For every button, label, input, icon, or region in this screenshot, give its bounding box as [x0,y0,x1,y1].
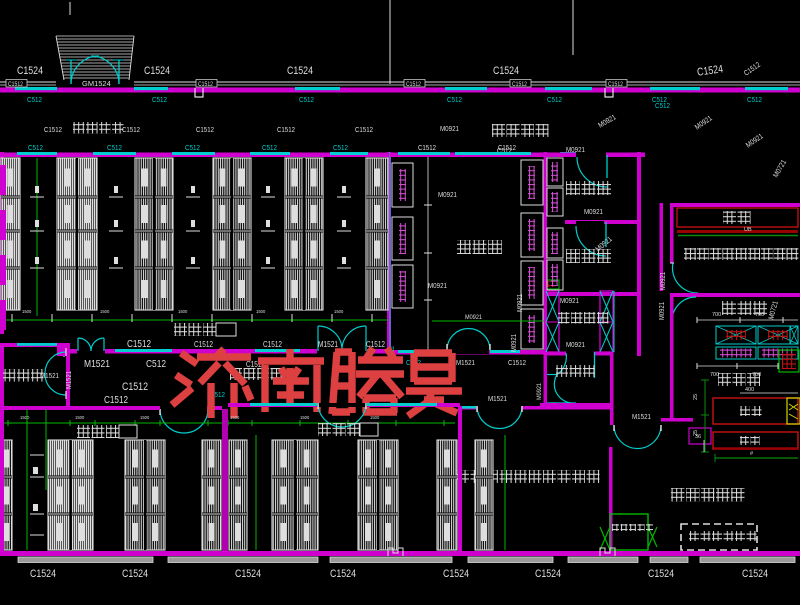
svg-text:1500: 1500 [22,309,32,314]
svg-text:C1524: C1524 [30,568,56,580]
svg-text:C1512: C1512 [44,125,62,134]
svg-text:400: 400 [745,387,754,393]
svg-text:M1521: M1521 [456,358,475,367]
svg-text:C512: C512 [299,95,314,104]
svg-text:C1512: C1512 [418,143,436,152]
svg-text:C512: C512 [447,95,462,104]
svg-text:M0921: M0921 [584,207,603,216]
svg-text:C1512: C1512 [608,81,623,88]
svg-text:C512: C512 [107,143,122,152]
svg-text:1500: 1500 [230,415,240,420]
svg-text:1500: 1500 [20,415,30,420]
svg-text:C1524: C1524 [287,65,313,77]
svg-text:M0921: M0921 [511,334,518,352]
svg-text:M0921: M0921 [659,302,666,320]
svg-text:C1512: C1512 [512,81,527,88]
svg-text:C1524: C1524 [17,65,43,77]
svg-text:C1524: C1524 [144,65,170,77]
svg-text:C1524: C1524 [443,568,469,580]
svg-text:C1512: C1512 [196,125,214,134]
svg-text:C1512: C1512 [498,143,516,152]
svg-text:GM1524: GM1524 [82,79,111,88]
svg-text:1500: 1500 [256,309,266,314]
svg-text:1500: 1500 [334,309,344,314]
svg-text:UB: UB [744,227,752,233]
svg-text:C512: C512 [333,143,348,152]
svg-text:C1512: C1512 [194,340,213,349]
svg-text:1500: 1500 [100,309,110,314]
svg-text:M0921: M0921 [465,314,482,321]
svg-text:C1524: C1524 [535,568,561,580]
svg-text:M0921: M0921 [660,272,667,290]
svg-text:M1521: M1521 [40,371,59,380]
svg-text:C1524: C1524 [742,568,768,580]
svg-text:C1524: C1524 [330,568,356,580]
svg-text:C1512: C1512 [8,81,23,88]
svg-text:C512: C512 [547,95,562,104]
svg-text:700: 700 [712,312,721,318]
svg-text:C1512: C1512 [122,381,148,393]
svg-text:M0921: M0921 [517,294,524,312]
svg-text:1500: 1500 [140,415,150,420]
svg-text:M0921: M0921 [438,190,457,199]
svg-text:25: 25 [693,430,699,436]
svg-text:C1512: C1512 [508,358,526,367]
svg-text:C512: C512 [28,143,43,152]
svg-text:C512: C512 [185,143,200,152]
svg-text:M0921: M0921 [536,383,543,400]
svg-text:M1521: M1521 [488,394,507,403]
svg-text:C1512: C1512 [263,340,282,349]
svg-text:C512: C512 [146,359,166,370]
svg-text:C1512: C1512 [277,125,295,134]
svg-text:M0921: M0921 [440,124,459,133]
svg-text:1500: 1500 [178,309,188,314]
svg-text:M1521: M1521 [632,412,651,421]
svg-text:C512: C512 [262,143,277,152]
svg-text:C512: C512 [747,95,762,104]
svg-text:M1521: M1521 [84,359,110,370]
svg-text:C1512: C1512 [355,125,373,134]
svg-text:C1512: C1512 [406,81,421,88]
svg-text:25: 25 [693,394,699,400]
svg-text:C512: C512 [152,95,167,104]
svg-text:C1512: C1512 [127,339,151,350]
svg-text:700: 700 [755,312,764,318]
svg-text:C512: C512 [655,101,670,110]
svg-text:700: 700 [710,372,719,378]
svg-text:C1512: C1512 [104,395,128,406]
svg-text:C1512: C1512 [122,125,140,134]
svg-text:C512: C512 [27,95,42,104]
svg-text:C1524: C1524 [648,568,674,580]
svg-text:1500: 1500 [75,415,85,420]
svg-text:M0921: M0921 [566,340,585,349]
svg-text:C1524: C1524 [493,65,519,77]
svg-text:M1521: M1521 [66,371,73,389]
svg-text:C1512: C1512 [198,81,213,88]
svg-text:M0921: M0921 [428,281,447,290]
svg-text:M1521: M1521 [318,340,338,349]
svg-text:C1524: C1524 [122,568,148,580]
svg-text:C1524: C1524 [235,568,261,580]
svg-text:1500: 1500 [370,415,380,420]
svg-text:1500: 1500 [300,415,310,420]
svg-text:M0921: M0921 [560,296,579,305]
